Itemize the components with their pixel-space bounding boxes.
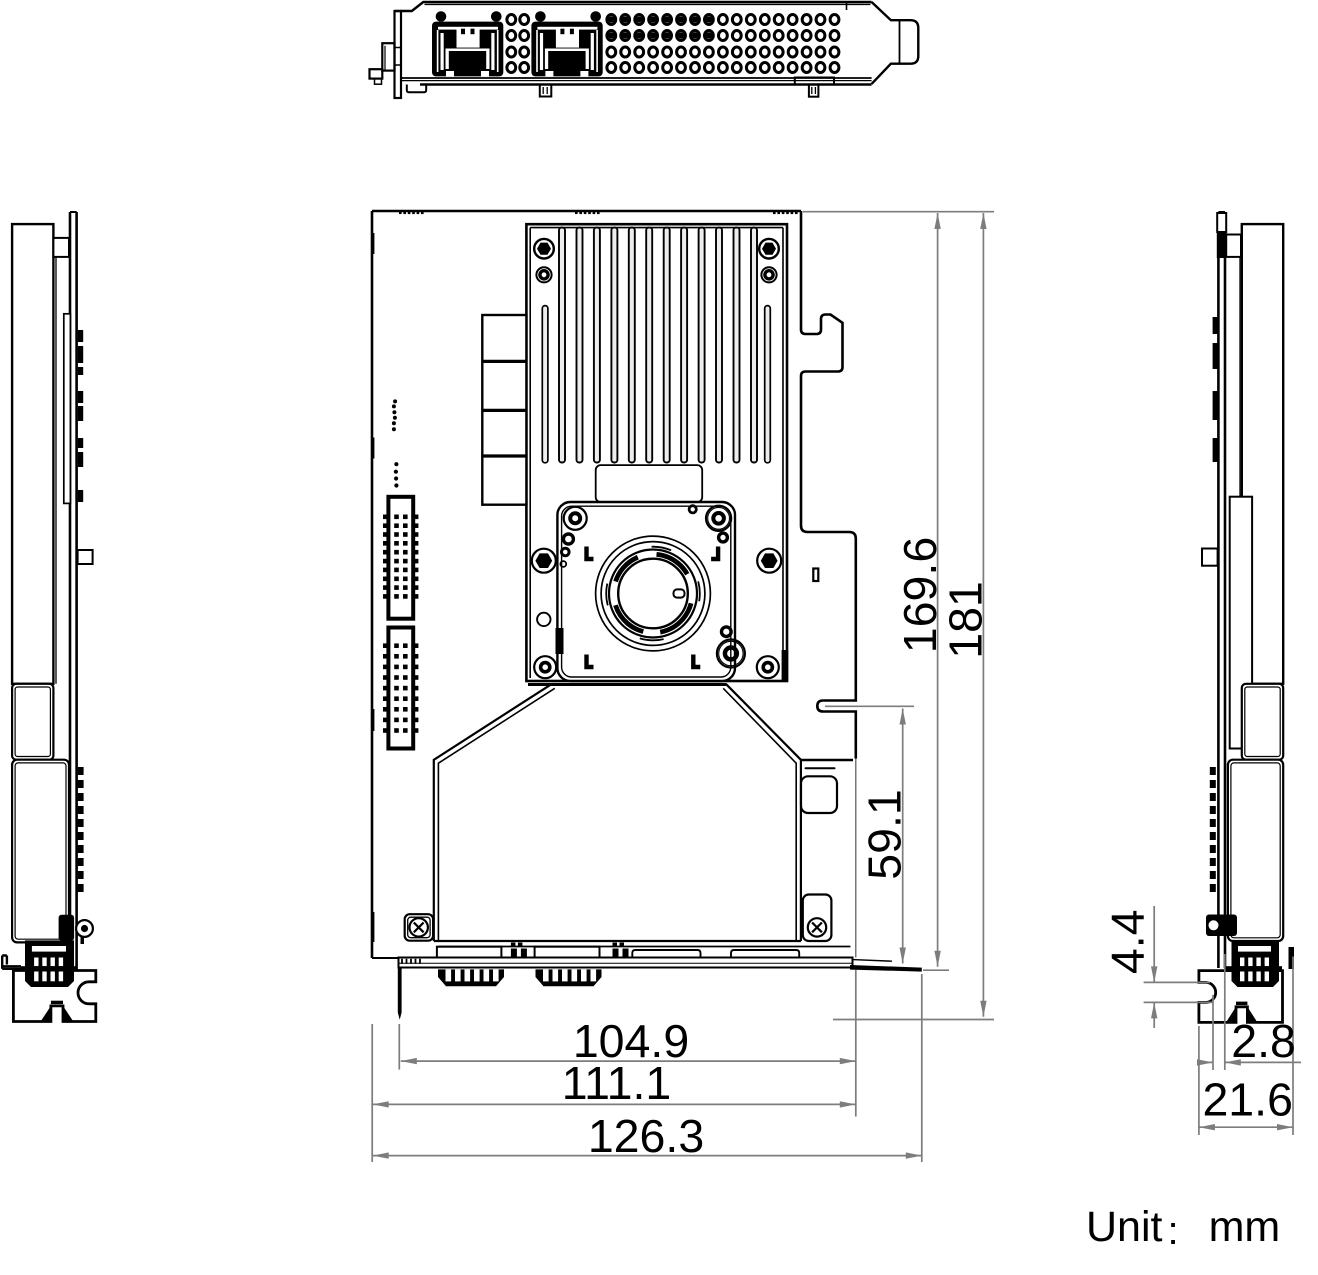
svg-text:169.6: 169.6 [894,537,946,653]
svg-text:126.3: 126.3 [588,1110,704,1162]
svg-text:181: 181 [939,581,991,659]
svg-text:21.6: 21.6 [1202,1074,1293,1126]
svg-text:111.1: 111.1 [562,1057,671,1109]
svg-text:59.1: 59.1 [859,789,911,880]
svg-text:4.4: 4.4 [1102,909,1154,974]
svg-text:2.8: 2.8 [1231,1015,1296,1067]
